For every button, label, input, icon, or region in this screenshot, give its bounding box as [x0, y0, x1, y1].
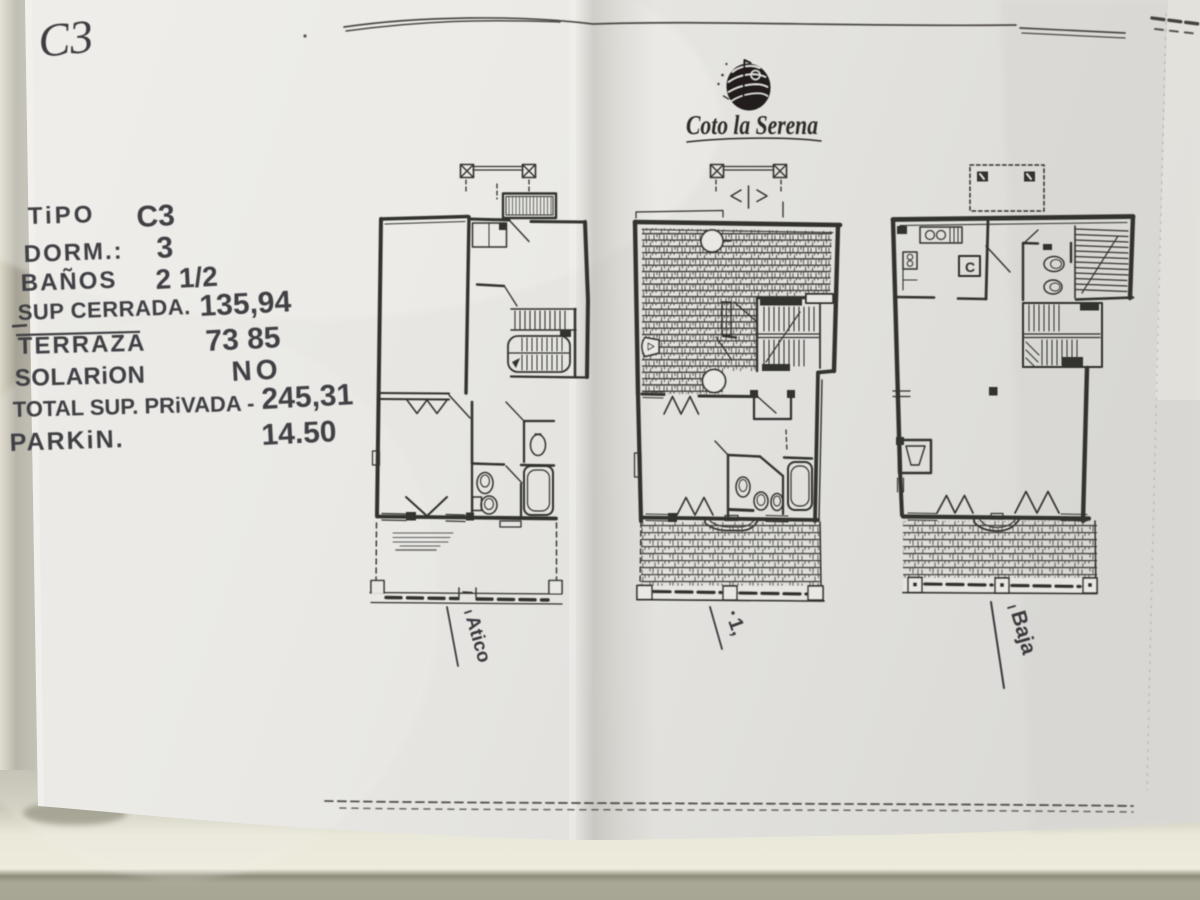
svg-text:245,31: 245,31	[261, 378, 354, 416]
svg-text:C: C	[965, 259, 975, 275]
svg-text:BAÑOS: BAÑOS	[20, 266, 118, 297]
svg-text:Coto la Serena: Coto la Serena	[686, 110, 818, 140]
svg-text:DORM.:: DORM.:	[23, 238, 124, 268]
svg-text:14.50: 14.50	[261, 415, 338, 452]
svg-text:3: 3	[156, 231, 174, 265]
svg-text:SOLARiON: SOLARiON	[14, 362, 145, 392]
svg-text:135,94: 135,94	[199, 285, 293, 323]
svg-text:73 85: 73 85	[205, 321, 282, 358]
svg-text:TiPO: TiPO	[27, 201, 95, 230]
svg-text:C3: C3	[136, 199, 176, 234]
svg-text:PARKiN.: PARKiN.	[9, 425, 125, 457]
svg-text:C3: C3	[36, 10, 96, 67]
